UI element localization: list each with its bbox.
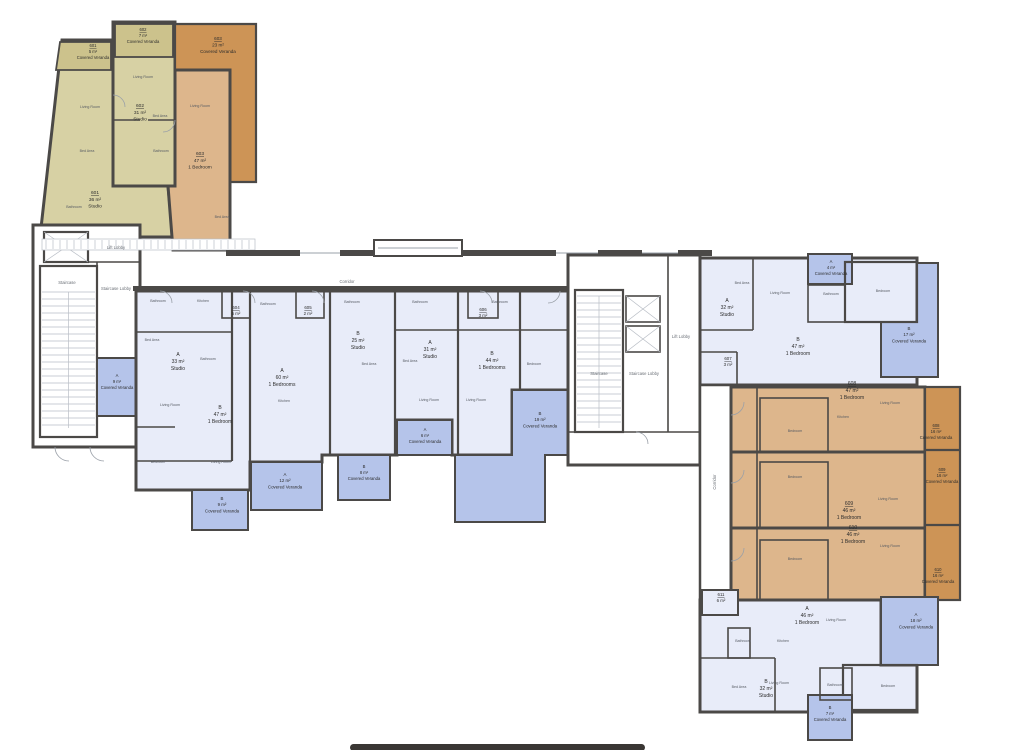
unit-603-type: 1 Bedroom — [188, 165, 211, 171]
room-label-bedroom: Bedroom — [788, 475, 803, 479]
unit-608v-type: Covered Veranda — [920, 435, 953, 440]
unit-608v-number: 608 — [933, 423, 941, 428]
unit-606-area: 3 m² — [479, 313, 488, 318]
unit-A46-type: 1 Bedroom — [795, 620, 819, 626]
unit-A9v-area: 9 m² — [113, 379, 122, 384]
staircase-lobby-label: Staircase Lobby — [629, 371, 660, 376]
room-label-bed-area: Bed Area — [362, 362, 377, 366]
room-label-bed-area: Bed Area — [80, 149, 95, 153]
unit-601v-type: Covered Veranda — [77, 55, 110, 60]
unit-605-number: 605 — [304, 305, 312, 310]
unit-601-type: Studio — [88, 204, 102, 210]
room-label-living-room: Living Room — [880, 544, 900, 548]
unit-B19v-area: 19 m² — [534, 417, 546, 422]
room-label-bedroom: Bedroom — [527, 362, 542, 366]
room-label-bathroom: Bathroom — [827, 683, 843, 687]
block-middle-units — [136, 291, 568, 530]
unit-609-area: 46 m² — [843, 508, 856, 514]
unit-A6v-number: A — [424, 427, 427, 432]
room-label-bathroom: Bathroom — [260, 302, 276, 306]
unit-A4v-number: A — [830, 259, 833, 264]
room-label-bathroom: Bathroom — [492, 300, 508, 304]
bottom-drag-pill[interactable] — [350, 744, 645, 750]
unit-611-area: 6 m² — [717, 598, 726, 603]
unit-B19v-type: Covered Veranda — [523, 423, 558, 428]
unit-602-number: 602 — [136, 103, 144, 109]
unit-B32-type: Studio — [759, 693, 773, 699]
corridor-label: Corridor — [339, 279, 355, 284]
unit-A32-area: 32 m² — [721, 305, 734, 311]
lift-lobby-label: Lift Lobby — [107, 245, 126, 250]
unit-B7v-type: Covered Veranda — [814, 717, 847, 722]
unit-610v-type: Covered Veranda — [922, 579, 955, 584]
unit-A9v-type: Covered Veranda — [101, 385, 134, 390]
unit-609v-type: Covered Veranda — [926, 479, 959, 484]
room-label-bathroom: Bathroom — [823, 292, 839, 296]
unit-605-area: 2 m² — [304, 311, 313, 316]
unit-A9v-number: A — [116, 373, 119, 378]
room-label-kitchen: Kitchen — [837, 415, 849, 419]
staircase-label: Staircase — [58, 280, 76, 285]
room-label-bathroom: Bathroom — [66, 205, 82, 209]
room-label-bedroom: Bedroom — [788, 557, 803, 561]
unit-603v-area: 23 m² — [212, 43, 224, 48]
unit-B47r-type: 1 Bedroom — [786, 351, 810, 357]
room-label-bed-area: Bed Area — [732, 685, 747, 689]
staircase-label: Staircase — [590, 371, 608, 376]
unit-607-number: 607 — [724, 356, 732, 361]
unit-B25-type: Studio — [351, 345, 365, 351]
unit-A60-type: 1 Bedrooms — [269, 382, 296, 388]
unit-602v-type: Covered Veranda — [127, 39, 160, 44]
unit-label-604: 6045 m² — [232, 305, 241, 316]
unit-A18v-area: 18 m² — [910, 618, 922, 623]
unit-B9v-type: Covered Veranda — [205, 508, 240, 513]
unit-B47-area: 47 m² — [214, 412, 227, 418]
unit-B9v-number: B — [221, 496, 224, 501]
unit-603v-number: 603 — [214, 36, 222, 41]
unit-610-type: 1 Bedroom — [841, 539, 865, 545]
room-label-living-room: Living Room — [769, 681, 789, 685]
room-label-living-room: Living Room — [466, 398, 486, 402]
unit-603-number: 603 — [196, 151, 204, 157]
room-label-living-room: Living Room — [878, 497, 898, 501]
room-label-bedroom: Bedroom — [151, 460, 166, 464]
unit-603-area: 47 m² — [194, 158, 207, 164]
room-label-living-room: Living Room — [770, 291, 790, 295]
unit-A12v-number: A — [284, 472, 287, 477]
unit-610v-number: 610 — [935, 567, 943, 572]
room-label-bathroom: Bathroom — [344, 300, 360, 304]
corridor-vertical — [700, 385, 731, 600]
unit-B17v-area: 17 m² — [903, 332, 915, 337]
unit-602-area: 31 m² — [134, 110, 147, 116]
room-label-bedroom: Bedroom — [876, 289, 891, 293]
unit-B19v-number: B — [539, 411, 542, 416]
unit-A33-type: Studio — [171, 366, 185, 372]
unit-602v-area: 7 m² — [139, 33, 148, 38]
unit-B32-area: 32 m² — [760, 686, 773, 692]
room-label-bathroom: Bathroom — [412, 300, 428, 304]
unit-A46-area: 46 m² — [801, 613, 814, 619]
block-left-stairs — [33, 225, 140, 447]
room-label-bedroom: Bedroom — [788, 429, 803, 433]
room-label-bed-area: Bed Area — [145, 338, 160, 342]
unit-A18v-type: Covered Veranda — [899, 624, 934, 629]
unit-610v-area: 16 m² — [933, 573, 944, 578]
room-label-living-room: Living Room — [419, 398, 439, 402]
unit-label-607: 6073 m² — [724, 356, 733, 367]
unit-601-number: 601 — [91, 190, 99, 196]
unit-B47r-area: 47 m² — [792, 344, 805, 350]
stair-core-right — [568, 255, 700, 465]
unit-A4v-area: 4 m² — [827, 265, 836, 270]
unit-A32-type: Studio — [720, 312, 734, 318]
room-label-living-room: Living Room — [190, 104, 210, 108]
unit-602v-number: 602 — [140, 27, 148, 32]
room-label-kitchen: Kitchen — [777, 639, 789, 643]
unit-B44-area: 44 m² — [486, 358, 499, 364]
unit-B47-type: 1 Bedroom — [208, 419, 232, 425]
room-label-living-room: Living Room — [80, 105, 100, 109]
unit-608-number: 608 — [848, 381, 857, 387]
block-right-wing — [700, 254, 960, 740]
unit-A60-area: 60 m² — [276, 375, 289, 381]
room-label-bathroom: Bathroom — [150, 299, 166, 303]
unit-B17v-type: Covered Veranda — [892, 338, 927, 343]
room-label-living-room: Living Room — [211, 460, 231, 464]
room-label-bathroom: Bathroom — [153, 149, 169, 153]
unit-602-type: Studio — [133, 117, 147, 123]
unit-601v-number: 601 — [90, 43, 98, 48]
unit-609v-area: 16 m² — [937, 473, 948, 478]
room-label-bathroom: Bathroom — [200, 357, 216, 361]
unit-B25-area: 25 m² — [352, 338, 365, 344]
unit-B9v-area: 9 m² — [218, 502, 227, 507]
room-label-bed-area: Bed Area — [215, 215, 230, 219]
room-label-bed-area: Bed Area — [153, 114, 168, 118]
unit-label-606: 6063 m² — [479, 307, 488, 318]
unit-B7v-area: 7 m² — [826, 711, 835, 716]
unit-B7v-number: B — [829, 705, 832, 710]
room-label-bed-area: Bed Area — [735, 281, 750, 285]
unit-B17v-number: B — [908, 326, 911, 331]
room-label-bedroom: Bedroom — [881, 684, 896, 688]
unit-A6v-area: 6 m² — [421, 433, 430, 438]
room-label-bathroom: Bathroom — [735, 639, 751, 643]
unit-A4v-type: Covered Veranda — [815, 271, 848, 276]
room-label-living-room: Living Room — [133, 75, 153, 79]
unit-A12v-type: Covered Veranda — [268, 484, 303, 489]
unit-B8v-type: Covered Veranda — [348, 476, 381, 481]
unit-609v-number: 609 — [939, 467, 947, 472]
unit-606-number: 606 — [479, 307, 487, 312]
room-label-bed-area: Bed Area — [403, 359, 418, 363]
unit-A18v-number: A — [915, 612, 918, 617]
room-label-living-room: Living Room — [826, 618, 846, 622]
unit-label-605: 6052 m² — [304, 305, 313, 316]
unit-B8v-area: 8 m² — [360, 470, 369, 475]
lift-lobby-label: Lift Lobby — [672, 334, 691, 339]
unit-607-area: 3 m² — [724, 362, 733, 367]
unit-609-number: 609 — [845, 501, 854, 507]
unit-608-type: 1 Bedroom — [840, 395, 864, 401]
unit-601v-area: 5 m² — [89, 49, 98, 54]
unit-604-number: 604 — [232, 305, 240, 310]
unit-610-number: 610 — [849, 525, 858, 531]
unit-608v-area: 16 m² — [931, 429, 942, 434]
unit-608-area: 47 m² — [846, 388, 859, 394]
unit-609-type: 1 Bedroom — [837, 515, 861, 521]
room-label-living-room: Living Room — [880, 401, 900, 405]
unit-A6v-type: Covered Veranda — [409, 439, 442, 444]
unit-610-area: 46 m² — [847, 532, 860, 538]
unit-A33-area: 33 m² — [172, 359, 185, 365]
staircase-lobby-label: Staircase Lobby — [101, 286, 132, 291]
unit-601-area: 36 m² — [89, 197, 102, 203]
unit-603v-type: Covered Veranda — [200, 49, 236, 54]
floor-plan-canvas: 6015 m²Covered Veranda6027 m²Covered Ver… — [0, 0, 1024, 750]
veranda-A18-floor — [881, 597, 938, 665]
unit-604-area: 5 m² — [232, 311, 241, 316]
unit-A31-type: Studio — [423, 354, 437, 360]
floor-plan-svg: 6015 m²Covered Veranda6027 m²Covered Ver… — [0, 0, 1024, 750]
corridor-label: Corridor — [712, 474, 717, 490]
unit-A31-area: 31 m² — [424, 347, 437, 353]
unit-A12v-area: 12 m² — [279, 478, 291, 483]
unit-611-number: 611 — [718, 592, 726, 597]
orange-veranda-column — [925, 387, 960, 600]
unit-B44-type: 1 Bedrooms — [479, 365, 506, 371]
room-label-kitchen: Kitchen — [278, 399, 290, 403]
room-label-kitchen: Kitchen — [197, 299, 209, 303]
room-label-living-room: Living Room — [160, 403, 180, 407]
unit-B8v-number: B — [363, 464, 366, 469]
block-right-stairs — [568, 255, 700, 465]
